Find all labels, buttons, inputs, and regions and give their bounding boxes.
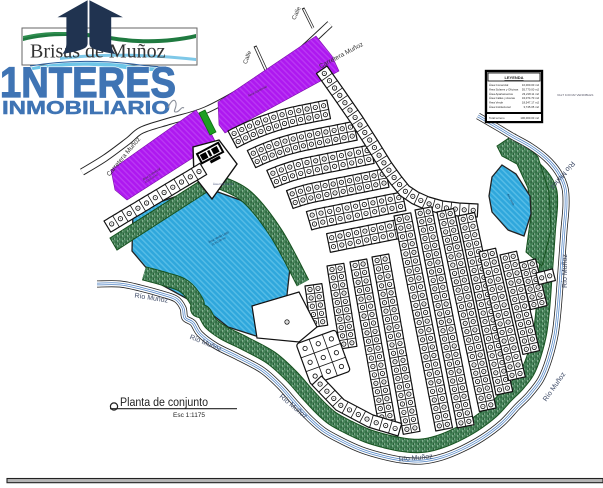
svg-text:Área Verde: Área Verde xyxy=(489,101,503,105)
svg-text:Área Comercial: Área Comercial xyxy=(489,83,509,87)
svg-text:Planta de conjunto: Planta de conjunto xyxy=(120,395,208,409)
svg-text:Área Apartamentos: Área Apartamentos xyxy=(489,92,514,96)
svg-text:10,000.00 m2: 10,000.00 m2 xyxy=(522,83,540,87)
svg-text:23,218.11 m2: 23,218.11 m2 xyxy=(522,92,539,96)
svg-text:Área Calles y Aceras: Área Calles y Aceras xyxy=(489,96,516,100)
svg-text:34,074.70 m2: 34,074.70 m2 xyxy=(522,96,540,100)
svg-text:100,000.00 m2: 100,000.00 m2 xyxy=(520,116,539,120)
svg-text:3,745.05 m2: 3,745.05 m2 xyxy=(523,105,539,109)
svg-text:Área Institucional: Área Institucional xyxy=(213,182,233,186)
svg-text:VALT 9.00 M2 VENDIBLES: VALT 9.00 M2 VENDIBLES xyxy=(557,93,593,97)
svg-text:INMOBILIARIO: INMOBILIARIO xyxy=(2,97,170,118)
svg-text:Total terreno: Total terreno xyxy=(489,116,505,120)
svg-text:Río Muñoz: Río Muñoz xyxy=(562,254,569,288)
svg-text:55,770.00 m2: 55,770.00 m2 xyxy=(522,87,540,91)
svg-text:LEYENDA: LEYENDA xyxy=(504,75,523,80)
svg-text:Esc 1:1175: Esc 1:1175 xyxy=(173,412,205,419)
svg-text:Área Institucional: Área Institucional xyxy=(489,105,511,109)
svg-text:Área Solares y Oficinas: Área Solares y Oficinas xyxy=(489,87,519,91)
svg-text:18,547.17 m2: 18,547.17 m2 xyxy=(522,101,540,105)
